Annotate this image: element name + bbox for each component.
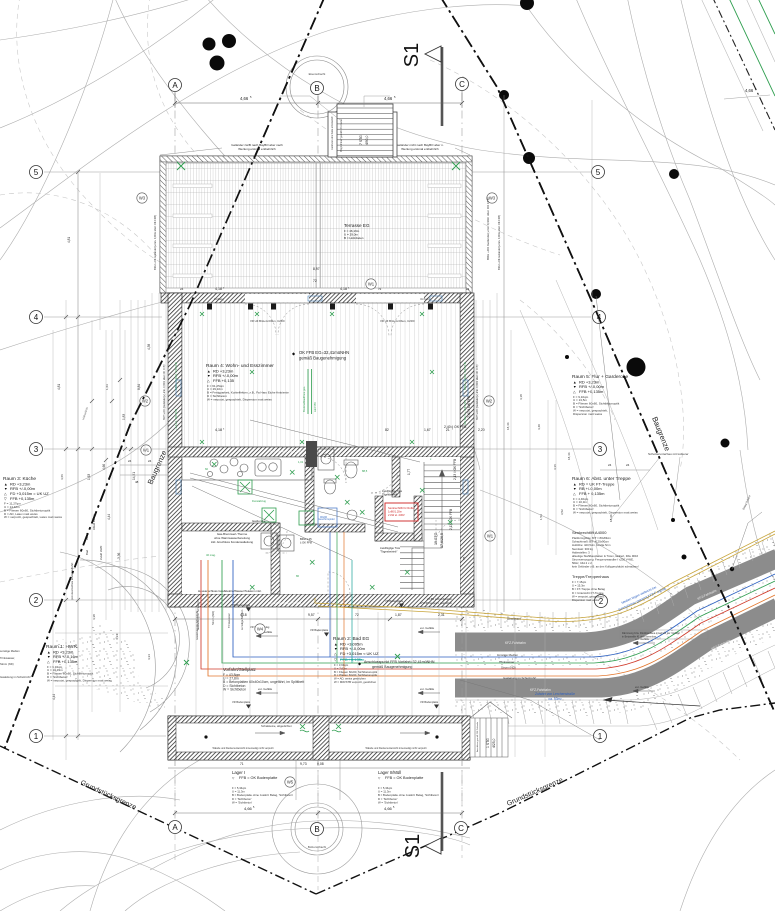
- svg-text:FFB = OK Bodenplatte: FFB = OK Bodenplatte: [239, 776, 277, 780]
- svg-text:Lager I: Lager I: [232, 770, 245, 775]
- svg-text:FFB = OK Bodenplatte: FFB = OK Bodenplatte: [385, 776, 423, 780]
- svg-text:4,66: 4,66: [244, 806, 253, 811]
- svg-text:90x90: 90x90: [320, 515, 328, 519]
- svg-text:4,18: 4,18: [240, 613, 247, 617]
- svg-text:48: 48: [135, 480, 139, 484]
- svg-text:4,38: 4,38: [92, 614, 96, 620]
- svg-text:Senkrechtlift für Rollst.: Senkrechtlift für Rollst.: [388, 506, 415, 510]
- svg-text:1 STG: 1 STG: [486, 738, 490, 748]
- svg-text:Vorfahrt/Stellplatz: Vorfahrt/Stellplatz: [223, 667, 256, 672]
- svg-text:W = verputzt, gespachtelt, Dis: W = verputzt, gespachtelt, Dispersion ma…: [573, 510, 638, 514]
- svg-text:2,13 ĉ OK FFB: 2,13 ĉ OK FFB: [453, 459, 457, 480]
- svg-text:Treppe/Treppenhaus: Treppe/Treppenhaus: [572, 574, 609, 579]
- svg-text:1,63: 1,63: [105, 384, 109, 390]
- svg-text:4,40: 4,40: [537, 424, 541, 430]
- svg-text:W = verputzt, gespachtelt, Dis: W = verputzt, gespachtelt, Dispersion ma…: [47, 678, 112, 682]
- svg-text:VR Bodenplatte: VR Bodenplatte: [232, 603, 251, 607]
- svg-text:2,20: 2,20: [478, 428, 485, 432]
- svg-text:BRH +0,90/1. OK FFB: BRH +0,90/1. OK FFB: [463, 362, 467, 390]
- svg-text:1,67: 1,67: [424, 428, 431, 432]
- svg-text:4,66: 4,66: [60, 474, 64, 480]
- svg-text:+1,13 1. OK FFB: +1,13 1. OK FFB: [174, 409, 178, 430]
- svg-text:4,81: 4,81: [57, 384, 61, 390]
- svg-text:Schotterunterbau mit lockerer: Schotterunterbau mit lockerer: [648, 452, 689, 456]
- svg-text:WYF95 verputzt, gestrichen: WYF95 verputzt, gestrichen: [420, 601, 453, 605]
- svg-text:W2: W2: [486, 399, 493, 404]
- svg-text:Wertung erstmal entbehrlich: Wertung erstmal entbehrlich: [401, 147, 439, 151]
- svg-text:71: 71: [240, 762, 244, 766]
- svg-text:46 mag.: 46 mag.: [206, 553, 216, 557]
- svg-text:Wegnahme? gemäß OK nieder: Wegnahme? gemäß OK nieder: [340, 119, 343, 152]
- svg-text:W1: W1: [143, 448, 150, 453]
- svg-text:1,01: 1,01: [298, 460, 304, 464]
- svg-text:W5: W5: [287, 780, 294, 785]
- svg-text:inkl. Anschluss Kondensatleitu: inkl. Anschluss Kondensatleitung: [211, 540, 253, 544]
- svg-text:BRH +OK Geländer(+min.0,90m üb: BRH +OK Geländer(+min.0,90m über OK FFB): [486, 197, 490, 260]
- svg-text:1,63: 1,63: [87, 474, 91, 480]
- svg-text:4,18: 4,18: [215, 287, 222, 291]
- svg-text:W3: W3: [139, 196, 146, 201]
- svg-text:C: C: [458, 824, 464, 833]
- svg-text:4,34: 4,34: [147, 654, 151, 660]
- svg-text:W = verputzt, gespachtelt, Lat: W = verputzt, gespachtelt, Latex matt we…: [4, 515, 62, 519]
- svg-text:B = Holzdielen: B = Holzdielen: [344, 236, 364, 240]
- svg-text:Trinkwasser,: Trinkwasser,: [0, 656, 15, 660]
- svg-text:17,6/26,5: 17,6/26,5: [440, 533, 444, 548]
- svg-text:Strom (ND): Strom (ND): [211, 611, 215, 625]
- svg-text:Dunstabzug: Dunstabzug: [252, 499, 266, 503]
- svg-text:24: 24: [148, 459, 152, 463]
- svg-text:FFB +0,135m: FFB +0,135m: [579, 389, 604, 394]
- svg-text:HY-B5 verbundplatten: HY-B5 verbundplatten: [427, 597, 453, 601]
- svg-text:FFB +0,135m: FFB +0,135m: [10, 496, 35, 501]
- svg-text:ext. Gefälle: ext. Gefälle: [635, 685, 650, 689]
- svg-text:4,36: 4,36: [553, 464, 557, 470]
- svg-text:Terrasse EG: Terrasse EG: [344, 223, 370, 228]
- svg-text:1: 1: [34, 732, 39, 741]
- svg-text:24: 24: [180, 287, 184, 291]
- svg-text:Gasleitung im Schutzrohr: Gasleitung im Schutzrohr: [195, 611, 199, 640]
- svg-text:2,13 ĉ OK FFB: 2,13 ĉ OK FFB: [449, 509, 453, 530]
- svg-text:4/25,0: 4/25,0: [492, 738, 496, 748]
- svg-text:Lager II/Müll: Lager II/Müll: [378, 770, 401, 775]
- svg-text:Trinkwasser: Trinkwasser: [499, 660, 515, 664]
- svg-text:4,66: 4,66: [745, 88, 754, 93]
- svg-text:VR Bodenplatte: VR Bodenplatte: [420, 700, 439, 704]
- svg-text:provisorisches Ende Zufahrt: provisorisches Ende Zufahrt: [70, 562, 74, 600]
- svg-text:VR UZ BrH/UrOBun, C20/30: VR UZ BrH/UrOBun, C20/30: [268, 601, 301, 605]
- svg-text:wird 555: wird 555: [313, 402, 317, 412]
- svg-text:in Betonwille 41 nicht brennba: in Betonwille 41 nicht brennbar: [622, 635, 656, 638]
- svg-text:ext. Gefälle: ext. Gefälle: [258, 687, 273, 691]
- svg-text:▲: ▲: [334, 642, 338, 646]
- svg-text:BRH +OK (Geländer(+)-min. 0,90: BRH +OK (Geländer(+)-min. 0,90m über OK …: [163, 364, 166, 420]
- svg-text:ca. 53m²: ca. 53m²: [548, 697, 562, 701]
- svg-text:5: 5: [34, 168, 39, 177]
- svg-text:Geländer eine Seite erforderli: Geländer eine Seite erforderlich: [331, 116, 334, 150]
- svg-text:▲: ▲: [573, 482, 577, 486]
- svg-text:A: A: [172, 81, 178, 90]
- svg-text:4,66: 4,66: [384, 96, 393, 101]
- svg-text:4,18: 4,18: [519, 394, 523, 400]
- svg-text:2,31: 2,31: [438, 613, 445, 617]
- svg-text:Strom (ND): Strom (ND): [0, 662, 14, 666]
- svg-text:3: 3: [34, 445, 39, 454]
- svg-text:86: 86: [296, 574, 299, 578]
- svg-text:Tagesbetrieb: Tagesbetrieb: [382, 493, 398, 497]
- svg-text:BRH +OK Geländer(+min. 0,90m ü: BRH +OK Geländer(+min. 0,90m über OK FFB…: [497, 215, 501, 270]
- svg-text:▲: ▲: [4, 482, 8, 486]
- svg-text:1x80/1,20m: 1x80/1,20m: [388, 510, 403, 514]
- svg-text:4,66: 4,66: [240, 96, 249, 101]
- svg-text:88,5: 88,5: [362, 469, 368, 473]
- svg-text:ext. Gefälle: ext. Gefälle: [420, 687, 435, 691]
- svg-text:24: 24: [626, 463, 630, 467]
- svg-text:▼: ▼: [4, 487, 8, 491]
- svg-text:OK FFB EG=32,41müNHN: OK FFB EG=32,41müNHN: [299, 350, 349, 355]
- svg-text:4,18: 4,18: [215, 428, 222, 432]
- svg-text:zweiflüglige Türe: zweiflüglige Türe: [380, 546, 401, 550]
- svg-text:Hausanschluss Gas/Elektro/Wass: Hausanschluss Gas/Elektro/Wasser/Telekom…: [198, 589, 262, 593]
- svg-text:VR UZ BrH+GrObun, C20/0: VR UZ BrH+GrObun, C20/0: [250, 319, 285, 323]
- svg-text:4,81: 4,81: [67, 237, 71, 243]
- svg-text:Schalsteine, abgedichtet: Schalsteine, abgedichtet: [261, 724, 292, 728]
- svg-text:sonstige Medien: sonstige Medien: [0, 649, 20, 653]
- svg-text:W = verputzt, gespachtelt, Dis: W = verputzt, gespachtelt, Dispersion ma…: [207, 397, 272, 401]
- svg-text:W = Sichtbeton: W = Sichtbeton: [223, 687, 246, 691]
- svg-text:24: 24: [128, 459, 132, 463]
- svg-text:C: C: [459, 80, 465, 89]
- svg-text:▼: ▼: [207, 374, 211, 378]
- svg-text:▼: ▼: [573, 385, 577, 389]
- svg-text:14,51: 14,51: [132, 472, 136, 480]
- svg-text:Zuluft HWR: Zuluft HWR: [99, 546, 103, 560]
- svg-text:60: 60: [205, 467, 208, 471]
- svg-text:S1: S1: [401, 43, 423, 67]
- svg-text:FFB +0,135m: FFB +0,135m: [53, 659, 78, 664]
- svg-text:gemäß Baugenehmigung: gemäß Baugenehmigung: [299, 356, 347, 361]
- svg-text:82: 82: [385, 428, 389, 432]
- svg-text:-3,36: -3,36: [117, 553, 121, 560]
- svg-text:1,83: 1,83: [122, 414, 126, 420]
- svg-text:A: A: [172, 823, 178, 832]
- svg-text:2,40 ĉ OK FFB: 2,40 ĉ OK FFB: [444, 425, 467, 429]
- svg-text:4,66: 4,66: [102, 464, 106, 470]
- svg-text:7 STG: 7 STG: [359, 135, 363, 145]
- svg-text:ext. Gefälle: ext. Gefälle: [420, 626, 435, 630]
- svg-text:FD +3,015m ≈ UK UZ: FD +3,015m ≈ UK UZ: [340, 651, 379, 656]
- svg-text:8,84: 8,84: [137, 384, 141, 390]
- svg-text:1,54: 1,54: [539, 514, 543, 520]
- svg-text:VR Bodenplatte: VR Bodenplatte: [232, 700, 251, 704]
- svg-text:BRH +OK (Geländer(+)-min. 0,90: BRH +OK (Geländer(+)-min. 0,90m über OK …: [476, 364, 479, 420]
- svg-text:BRH +OK Geländer(+min. 0,90m ü: BRH +OK Geländer(+min. 0,90m über OK FFB…: [153, 215, 157, 270]
- svg-text:3: 3: [598, 445, 603, 454]
- svg-text:9,57: 9,57: [308, 613, 315, 617]
- svg-text:KFZ-Fahrbahn: KFZ-Fahrbahn: [505, 641, 526, 645]
- svg-text:18,44: 18,44: [609, 514, 613, 522]
- svg-text:72: 72: [355, 613, 359, 617]
- svg-text:3,52: 3,52: [560, 509, 564, 515]
- svg-text:W2: W2: [142, 399, 149, 404]
- svg-text:Bad: Bad: [85, 550, 89, 555]
- svg-text:VR Bodenplatte: VR Bodenplatte: [385, 599, 404, 603]
- svg-text:1,87: 1,87: [395, 613, 402, 617]
- svg-text:18,44: 18,44: [567, 452, 571, 460]
- svg-text:Eisenschacht: Eisenschacht: [309, 72, 326, 76]
- svg-text:4,44: 4,44: [107, 514, 111, 520]
- svg-text:2 kW el. 230V: 2 kW el. 230V: [388, 513, 405, 517]
- svg-text:ĉ OK FFB: ĉ OK FFB: [300, 541, 312, 545]
- svg-text:Gasleitung im Schutzrohr!: Gasleitung im Schutzrohr!: [0, 675, 31, 679]
- svg-text:Anschlusspunkt FFB Vorfahrt=32: Anschlusspunkt FFB Vorfahrt=32,41müNHN: [364, 660, 435, 664]
- svg-text:Strom (ND): Strom (ND): [501, 666, 516, 670]
- svg-text:75: 75: [462, 556, 466, 560]
- svg-text:Senkrechtlift A4000: Senkrechtlift A4000: [572, 530, 607, 535]
- svg-text:W1: W1: [487, 534, 494, 539]
- svg-text:24: 24: [466, 287, 470, 291]
- svg-text:Bodenablaufrinne ges.: Bodenablaufrinne ges.: [302, 386, 306, 412]
- svg-text:2,40 ĉ OK FFB: 2,40 ĉ OK FFB: [467, 395, 471, 418]
- svg-text:VR UZ BrH+GrObun, C20/0: VR UZ BrH+GrObun, C20/0: [380, 319, 415, 323]
- svg-text:2: 2: [34, 596, 39, 605]
- svg-text:4,18: 4,18: [340, 287, 347, 291]
- svg-text:▼: ▼: [47, 655, 51, 659]
- svg-text:18,44: 18,44: [506, 422, 510, 430]
- svg-text:72: 72: [313, 279, 317, 283]
- svg-text:B: B: [314, 84, 319, 93]
- svg-text:4: 4: [34, 313, 39, 322]
- svg-text:gemäß Baugenehmigung: gemäß Baugenehmigung: [372, 665, 412, 669]
- svg-text:Dispersion matt weiss: Dispersion matt weiss: [572, 598, 600, 602]
- svg-text:1: 1: [598, 732, 603, 741]
- svg-text:Gasleitung im Schutzrohr!: Gasleitung im Schutzrohr!: [503, 676, 536, 680]
- svg-text:BRH 1,25: BRH 1,25: [300, 537, 312, 541]
- svg-text:24: 24: [608, 463, 612, 467]
- svg-text:Abwasser: Abwasser: [507, 617, 522, 621]
- svg-text:VR UZ BrH/UrOBun, C20/30: VR UZ BrH/UrOBun, C20/30: [270, 450, 303, 454]
- svg-text:9,73: 9,73: [300, 762, 307, 766]
- svg-text:W = MW/STB verputzt, gestriche: W = MW/STB verputzt, gestrichen: [334, 680, 377, 684]
- svg-text:8,97: 8,97: [313, 267, 320, 271]
- svg-text:kein Geländer z.B. an den Koll: kein Geländer z.B. an den Kollygeschächt…: [572, 565, 639, 569]
- svg-text:4,38: 4,38: [147, 344, 151, 350]
- svg-text:4/90,0: 4/90,0: [365, 135, 369, 145]
- svg-text:▲: ▲: [573, 380, 577, 384]
- svg-text:Wände und Deckenuntersicht inn: Wände und Deckenuntersicht innenseitig n…: [212, 747, 273, 750]
- svg-text:4,34: 4,34: [115, 634, 119, 640]
- svg-text:"Tagesbetrieb": "Tagesbetrieb": [380, 550, 397, 554]
- svg-text:4,66: 4,66: [384, 806, 393, 811]
- svg-text:W = 'Sichtbeton': W = 'Sichtbeton': [232, 800, 253, 804]
- svg-text:Dispersion matt weiss: Dispersion matt weiss: [573, 412, 603, 416]
- svg-text:72: 72: [378, 287, 382, 291]
- svg-text:1,77: 1,77: [407, 469, 411, 475]
- svg-text:FFB +0,135: FFB +0,135: [213, 378, 235, 383]
- svg-text:4,44: 4,44: [52, 694, 56, 700]
- svg-text:B: B: [314, 825, 319, 834]
- svg-text:Zufahrt von Lerchenstraße: Zufahrt von Lerchenstraße: [535, 692, 575, 696]
- svg-text:▼: ▼: [334, 647, 338, 651]
- svg-text:Vorhang: Vorhang: [420, 297, 430, 301]
- svg-text:▲: ▲: [207, 369, 211, 373]
- svg-text:Anschluss gemäß OK Gelände: Anschluss gemäß OK Gelände: [476, 721, 479, 752]
- svg-text:S1: S1: [402, 834, 424, 858]
- svg-text:▲: ▲: [47, 650, 51, 654]
- svg-text:Trinkwasser: Trinkwasser: [227, 613, 231, 628]
- svg-text:zweiflüglige Türe: zweiflüglige Türe: [382, 489, 403, 493]
- svg-text:W1: W1: [368, 282, 375, 287]
- svg-text:▼: ▼: [573, 487, 577, 491]
- svg-text:5: 5: [596, 168, 601, 177]
- svg-text:Bolzenschacht: Bolzenschacht: [308, 845, 326, 849]
- svg-text:Wände und Deckenuntersicht inn: Wände und Deckenuntersicht innenseitig n…: [365, 747, 426, 750]
- svg-text:Vorhang: Vorhang: [214, 297, 224, 301]
- svg-text:sonstige Medien: sonstige Medien: [497, 653, 518, 657]
- svg-text:VR Bodenplatte: VR Bodenplatte: [310, 628, 329, 632]
- svg-text:Garderobe: Garderobe: [252, 519, 266, 523]
- svg-text:W = 'Sichtbeton': W = 'Sichtbeton': [378, 800, 399, 804]
- svg-text:W4: W4: [257, 627, 264, 632]
